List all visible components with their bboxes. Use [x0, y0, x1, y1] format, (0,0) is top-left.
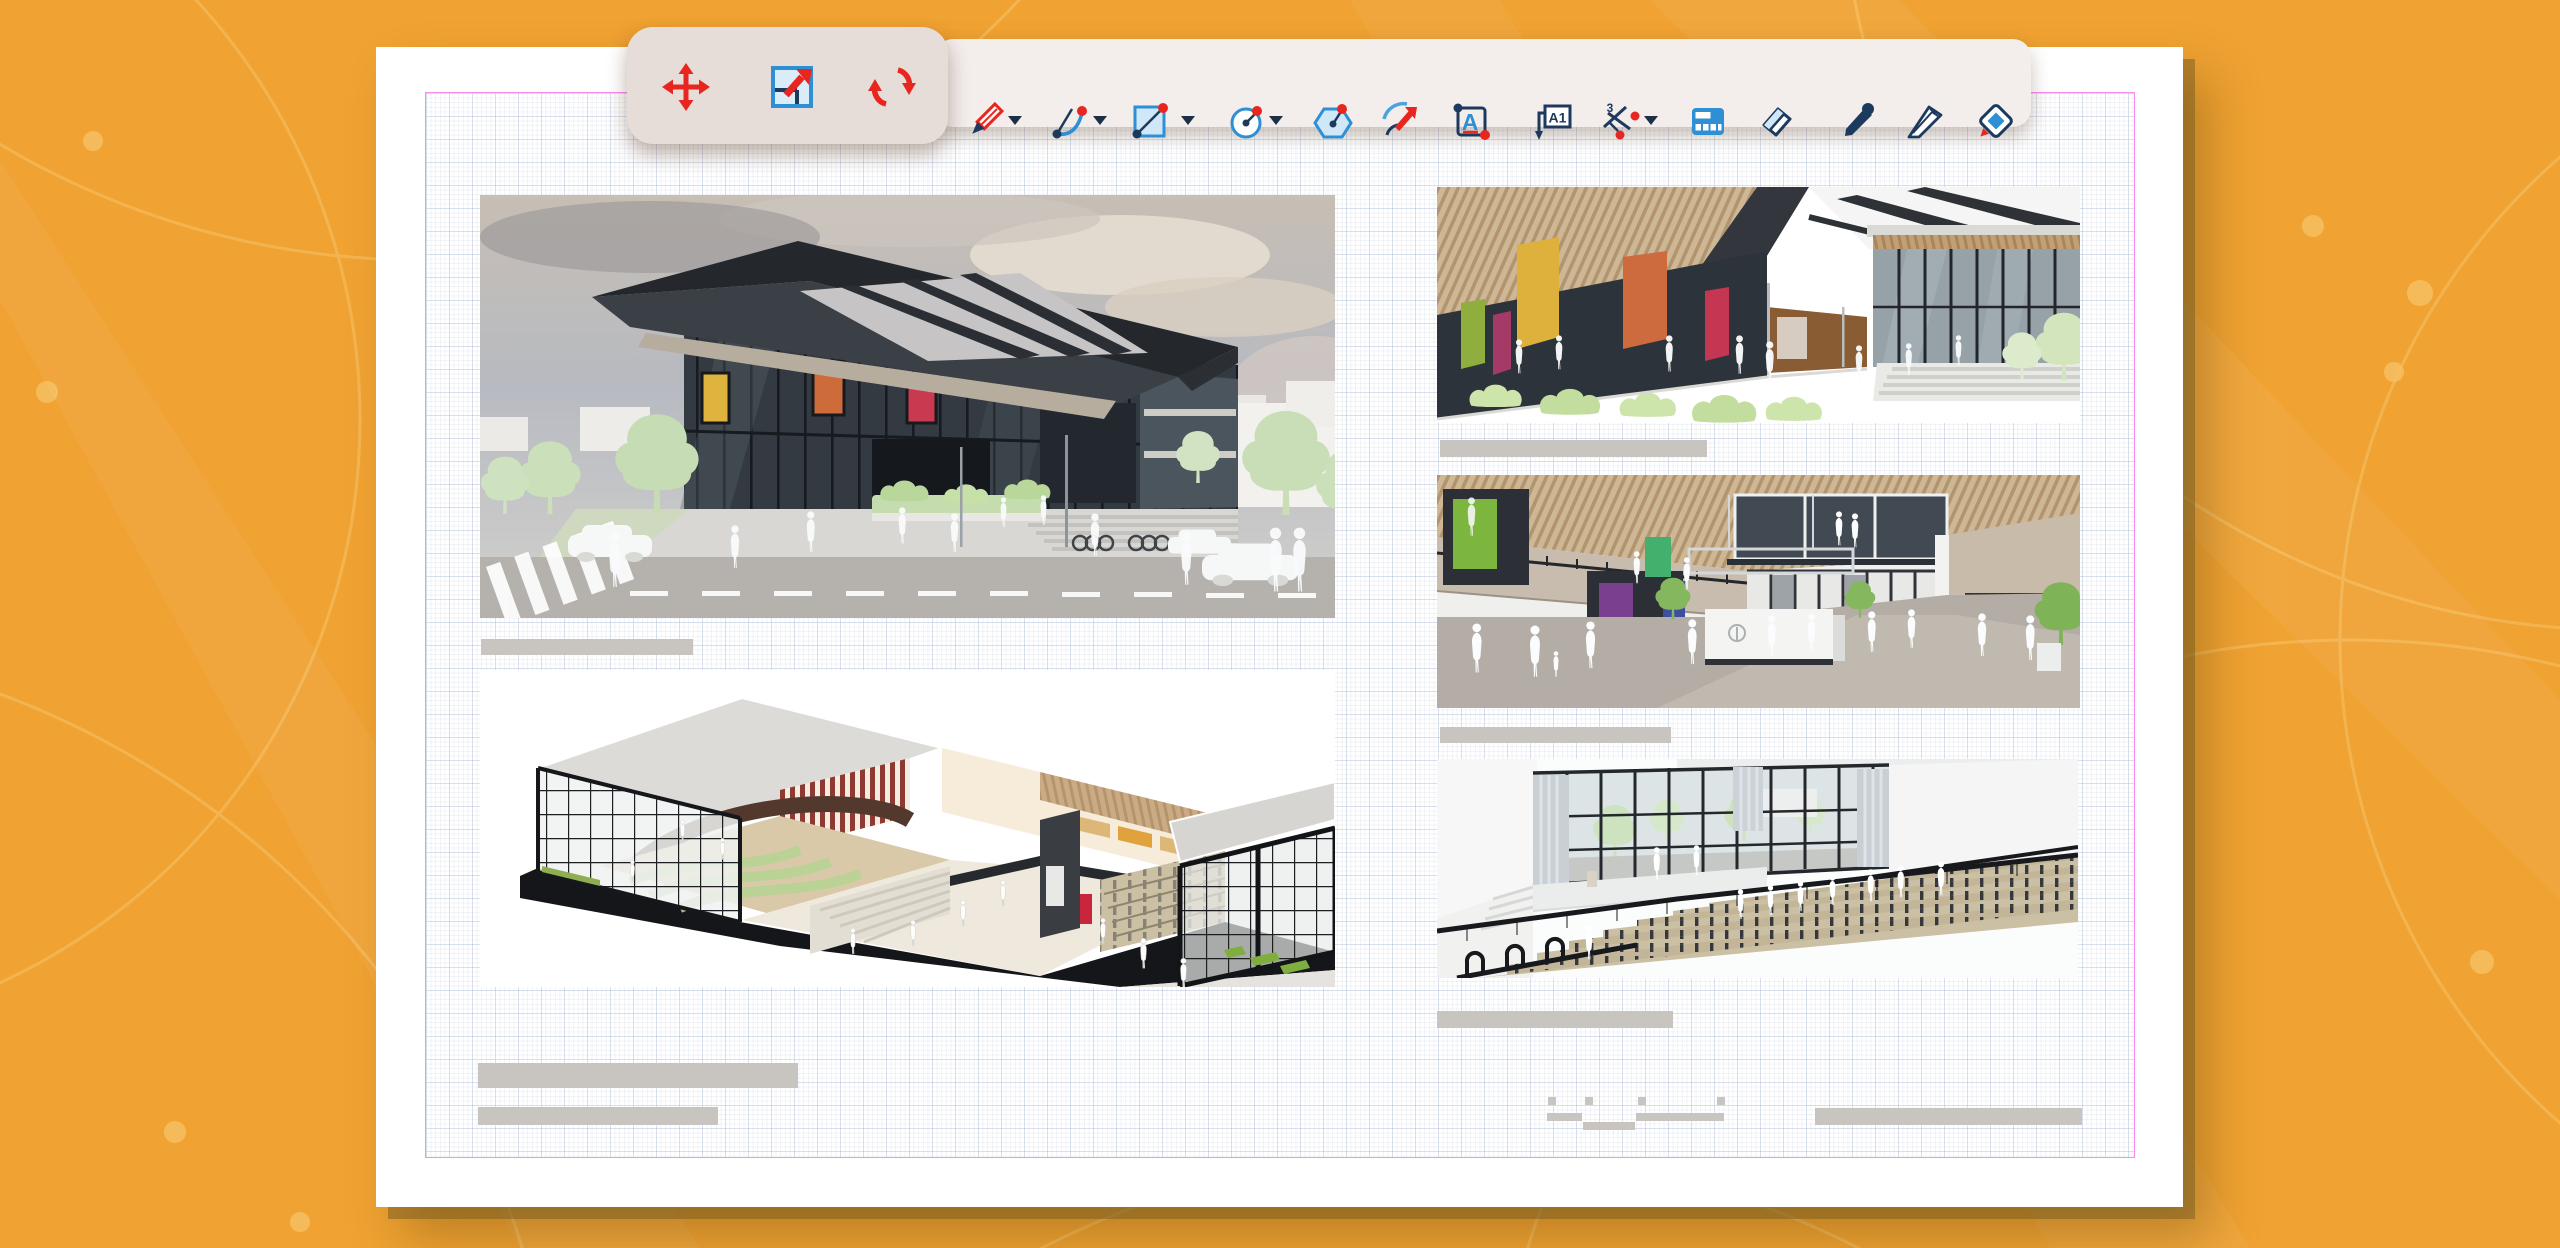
curve-tool-dropdown[interactable] [1093, 116, 1107, 125]
caption-placeholder[interactable] [481, 639, 693, 655]
color-picker-tool[interactable] [1837, 99, 1881, 143]
caption-placeholder[interactable] [1440, 440, 1707, 457]
rotate-tool[interactable] [868, 63, 916, 111]
glue-tool[interactable] [1974, 99, 2018, 143]
curve-tool[interactable] [1046, 99, 1090, 143]
rectangle-tool[interactable] [1128, 99, 1172, 143]
isometric-cutaway-rendering[interactable] [480, 670, 1335, 987]
caption-placeholder[interactable] [1440, 727, 1671, 743]
title-placeholder[interactable] [478, 1063, 798, 1088]
subtitle-placeholder[interactable] [478, 1107, 718, 1125]
footer-placeholder[interactable] [1815, 1108, 2082, 1125]
svg-text:A1: A1 [1549, 110, 1567, 126]
pen-tool[interactable] [963, 99, 1007, 143]
move-tool[interactable] [662, 63, 710, 111]
label-tool[interactable]: A1 [1531, 99, 1575, 143]
resize-tool[interactable] [768, 63, 816, 111]
cutter-tool[interactable] [1903, 99, 1947, 143]
multiple-copies-tool[interactable]: 3 [1598, 99, 1642, 143]
caption-placeholder[interactable] [1437, 1011, 1673, 1028]
auditorium-rendering[interactable] [1437, 759, 2078, 978]
atrium-interior-rendering[interactable] [1437, 475, 2080, 708]
ellipse-tool[interactable] [1224, 99, 1268, 143]
drawing-page[interactable] [376, 47, 2183, 1207]
ellipse-tool-dropdown[interactable] [1269, 116, 1283, 125]
multiple-copies-dropdown[interactable] [1644, 116, 1658, 125]
transform-arc-tool[interactable] [1379, 99, 1423, 143]
table-tool[interactable] [1686, 99, 1730, 143]
polygon-tool[interactable] [1311, 99, 1355, 143]
exterior-street-rendering[interactable] [480, 195, 1335, 618]
eraser-tool[interactable] [1754, 99, 1798, 143]
drawing-toolbar: A A1 3 [935, 39, 2031, 127]
svg-text:3: 3 [1607, 101, 1614, 115]
text-tool[interactable]: A [1449, 99, 1493, 143]
rectangle-tool-dropdown[interactable] [1181, 116, 1195, 125]
courtyard-rendering[interactable] [1437, 187, 2080, 423]
manipulation-toolbar [627, 27, 948, 144]
pen-tool-dropdown[interactable] [1008, 116, 1022, 125]
